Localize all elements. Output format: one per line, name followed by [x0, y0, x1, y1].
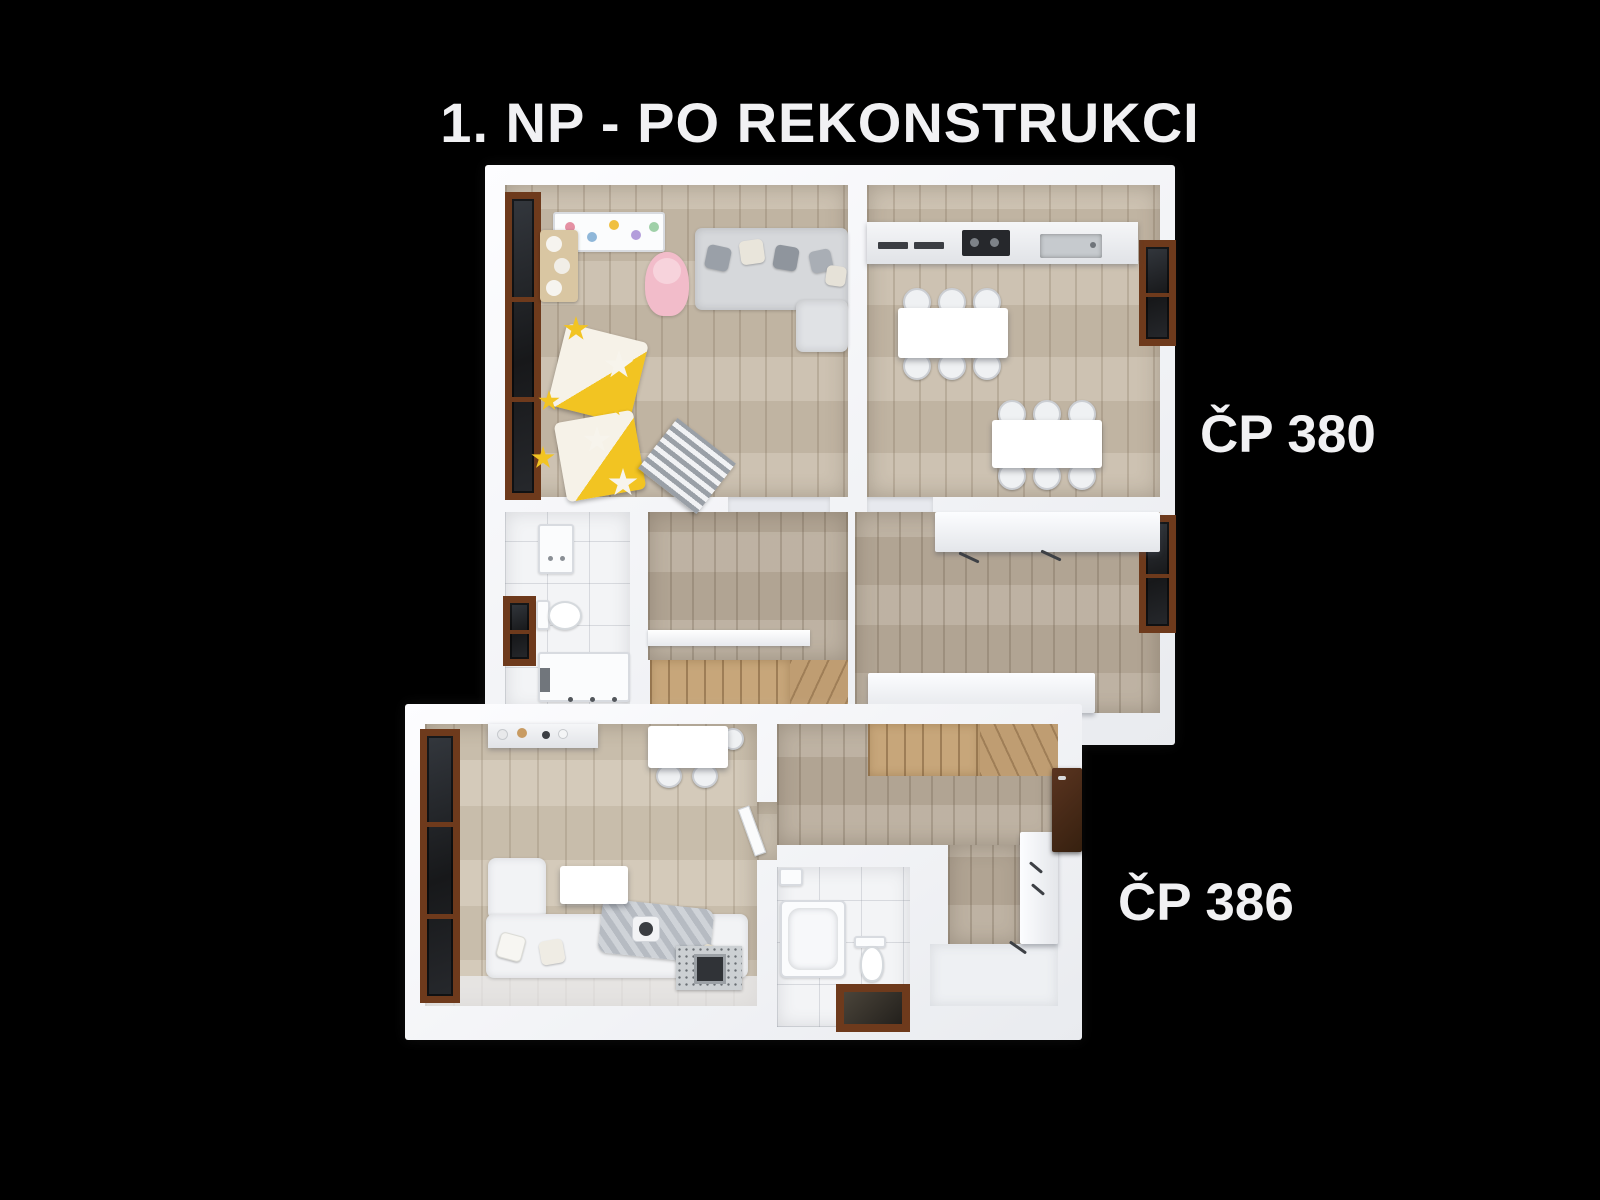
u380-bath-vanity	[538, 652, 630, 702]
pillow	[738, 238, 765, 265]
plush-toy-icon	[554, 258, 570, 274]
u380-kitchen-counter	[867, 222, 1138, 264]
vase-icon	[639, 922, 653, 936]
wardrobe-handle	[1031, 883, 1045, 896]
u380-dining-table-2	[992, 420, 1102, 468]
fitting	[590, 697, 595, 702]
floorplan-render: 1. NP - PO REKONSTRUKCI ČP 380 ČP 386	[0, 0, 1600, 1200]
knob	[560, 556, 565, 561]
u386-staircase-winder	[980, 724, 1058, 776]
u380-dining-table-1	[898, 308, 1008, 358]
play-tent	[554, 410, 647, 503]
cooktop-icon	[962, 230, 1010, 256]
plush-toy-icon	[546, 236, 562, 252]
u386-dining-table	[648, 726, 728, 768]
u386-coffee-table	[560, 866, 628, 904]
pillow	[538, 938, 566, 966]
knob	[548, 556, 553, 561]
u386-floor-hatch	[836, 984, 910, 1032]
bathtub-icon	[780, 900, 846, 978]
hob-icon	[542, 731, 550, 739]
burner	[970, 238, 979, 247]
u380-stair-wall	[648, 630, 810, 646]
u380-bath-cabinet	[538, 524, 574, 574]
page-title: 1. NP - PO REKONSTRUKCI	[440, 90, 1199, 155]
u386-staircase-treads	[868, 724, 980, 776]
u380-kitchen-window-icon	[1139, 240, 1176, 346]
u380-staircase-winder	[790, 660, 848, 710]
u380-hall-door-opening	[728, 497, 830, 512]
u386-entry-floor	[930, 944, 1058, 1006]
toy-icon	[609, 220, 619, 230]
counter-vent	[878, 242, 908, 249]
u386-living-window-icon	[420, 729, 460, 1003]
u386-sideboard	[1052, 768, 1082, 852]
toilet-icon	[548, 601, 582, 630]
pillow	[704, 244, 732, 272]
u386-sofa-chaise	[488, 858, 546, 920]
pastry-icon	[517, 728, 527, 738]
plush-toy-icon	[546, 280, 562, 296]
toy-icon	[631, 230, 641, 240]
u380-kitchen-door-opening	[867, 497, 933, 512]
window-mullion	[427, 822, 453, 827]
window-mullion	[1146, 574, 1169, 578]
unit-label-cp386: ČP 386	[1118, 872, 1294, 933]
sink-icon	[558, 729, 568, 739]
counter-vent	[914, 242, 944, 249]
pillow	[825, 265, 848, 288]
u380-bathroom-window-icon	[503, 596, 536, 666]
burner	[990, 238, 999, 247]
u386-bath-shelf	[779, 868, 803, 886]
pillow	[772, 244, 800, 272]
unit-label-cp380: ČP 380	[1200, 404, 1376, 465]
sideboard-handle	[1058, 776, 1066, 780]
side-table	[632, 916, 660, 942]
u386-hall-floor-right	[948, 845, 1024, 945]
wardrobe-handle	[1029, 861, 1043, 874]
window-mullion	[512, 297, 534, 302]
window-mullion	[510, 630, 529, 634]
plush-toy-bench	[540, 230, 578, 302]
window-mullion	[1146, 293, 1169, 297]
bathtub-basin	[788, 908, 838, 970]
u380-sofa-chaise	[796, 300, 848, 352]
fitting	[568, 697, 573, 702]
toilet-icon	[860, 946, 884, 982]
window-mullion	[512, 397, 534, 402]
u380-wardrobe-top	[935, 512, 1160, 552]
toy-icon	[587, 232, 597, 242]
faucet	[1090, 242, 1096, 248]
u380-playroom-window-icon	[505, 192, 541, 500]
u386-kitchenette-counter	[488, 724, 598, 748]
elephant-toy-icon	[645, 252, 689, 316]
toy-icon	[649, 222, 659, 232]
fitting	[612, 697, 617, 702]
bath-bin	[540, 668, 550, 692]
plate-icon	[497, 729, 508, 740]
sink-icon	[1040, 234, 1102, 258]
u386-stove-hearth	[676, 946, 742, 990]
elephant-head	[653, 258, 681, 284]
window-mullion	[427, 914, 453, 919]
stove-icon	[694, 954, 726, 984]
u380-staircase-treads	[650, 660, 790, 710]
